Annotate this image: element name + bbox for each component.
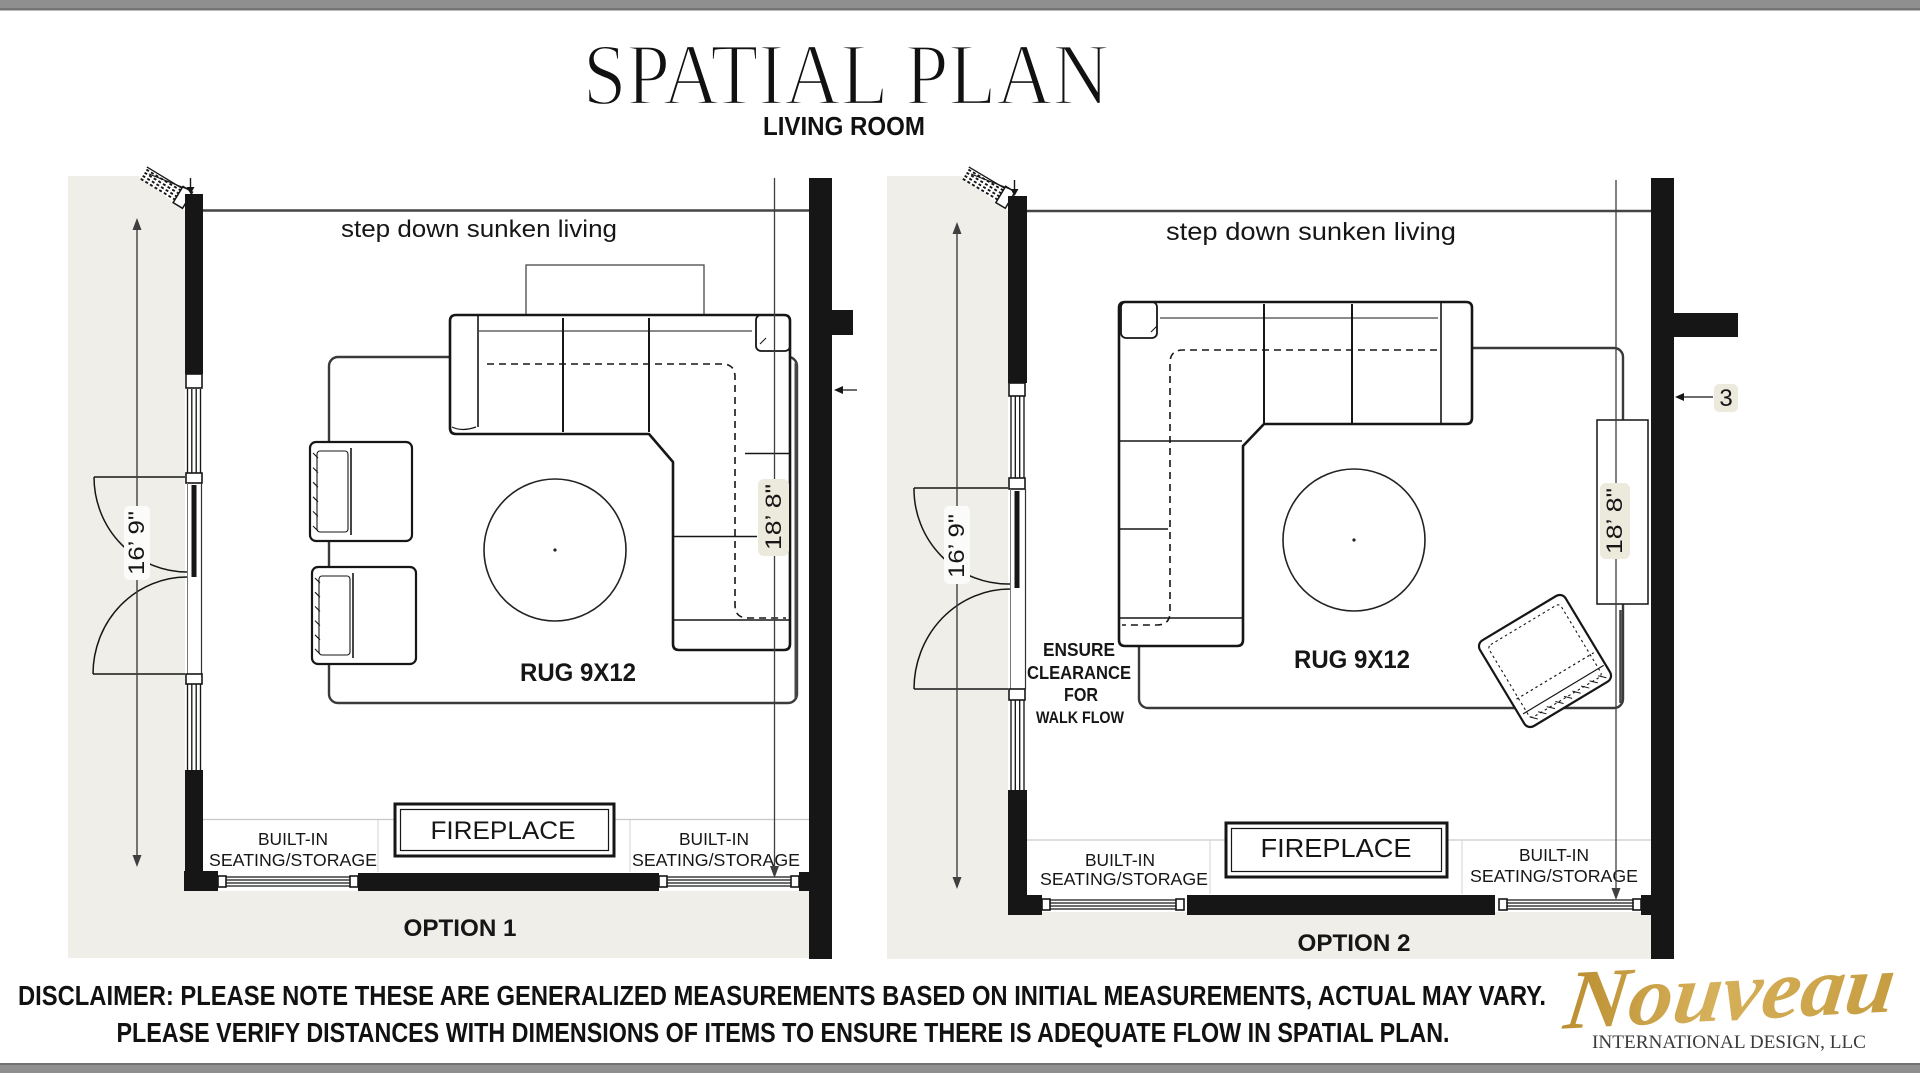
- svg-text:INTERNATIONAL DESIGN, LLC: INTERNATIONAL DESIGN, LLC: [1592, 1032, 1866, 1053]
- svg-text:step down sunken living: step down sunken living: [341, 216, 617, 243]
- svg-text:FIREPLACE: FIREPLACE: [1261, 833, 1412, 863]
- svg-text:RUG 9X12: RUG 9X12: [1294, 646, 1410, 674]
- svg-text:DISCLAIMER: PLEASE NOTE THESE: DISCLAIMER: PLEASE NOTE THESE ARE GENERA…: [18, 980, 1546, 1011]
- svg-text:18’ 8": 18’ 8": [761, 484, 786, 550]
- svg-text:SEATING/STORAGE: SEATING/STORAGE: [1040, 869, 1208, 889]
- svg-text:step down sunken living: step down sunken living: [1166, 218, 1456, 246]
- svg-text:16’ 9": 16’ 9": [124, 511, 149, 575]
- svg-text:WALK FLOW: WALK FLOW: [1036, 709, 1124, 727]
- svg-text:SEATING/STORAGE: SEATING/STORAGE: [209, 850, 377, 870]
- svg-text:18’ 8": 18’ 8": [1602, 488, 1627, 554]
- svg-text:BUILT-IN: BUILT-IN: [679, 829, 749, 849]
- svg-text:FOR: FOR: [1064, 684, 1098, 705]
- svg-text:OPTION 2: OPTION 2: [1298, 930, 1411, 957]
- svg-text:BUILT-IN: BUILT-IN: [258, 829, 328, 849]
- svg-text:PLEASE VERIFY DISTANCES WITH D: PLEASE VERIFY DISTANCES WITH DIMENSIONS …: [117, 1017, 1450, 1048]
- svg-text:OPTION 1: OPTION 1: [404, 915, 517, 942]
- svg-text:LIVING ROOM: LIVING ROOM: [763, 111, 925, 141]
- svg-text:BUILT-IN: BUILT-IN: [1085, 850, 1155, 870]
- svg-text:CLEARANCE: CLEARANCE: [1027, 662, 1131, 683]
- svg-text:3: 3: [1719, 385, 1732, 412]
- svg-text:FIREPLACE: FIREPLACE: [431, 817, 576, 845]
- svg-text:BUILT-IN: BUILT-IN: [1519, 845, 1589, 865]
- svg-text:16’ 9": 16’ 9": [944, 514, 969, 578]
- svg-text:RUG 9X12: RUG 9X12: [520, 659, 636, 687]
- svg-text:SPATIAL PLAN: SPATIAL PLAN: [583, 27, 1109, 124]
- svg-text:SEATING/STORAGE: SEATING/STORAGE: [1470, 866, 1638, 886]
- svg-text:ENSURE: ENSURE: [1043, 639, 1115, 660]
